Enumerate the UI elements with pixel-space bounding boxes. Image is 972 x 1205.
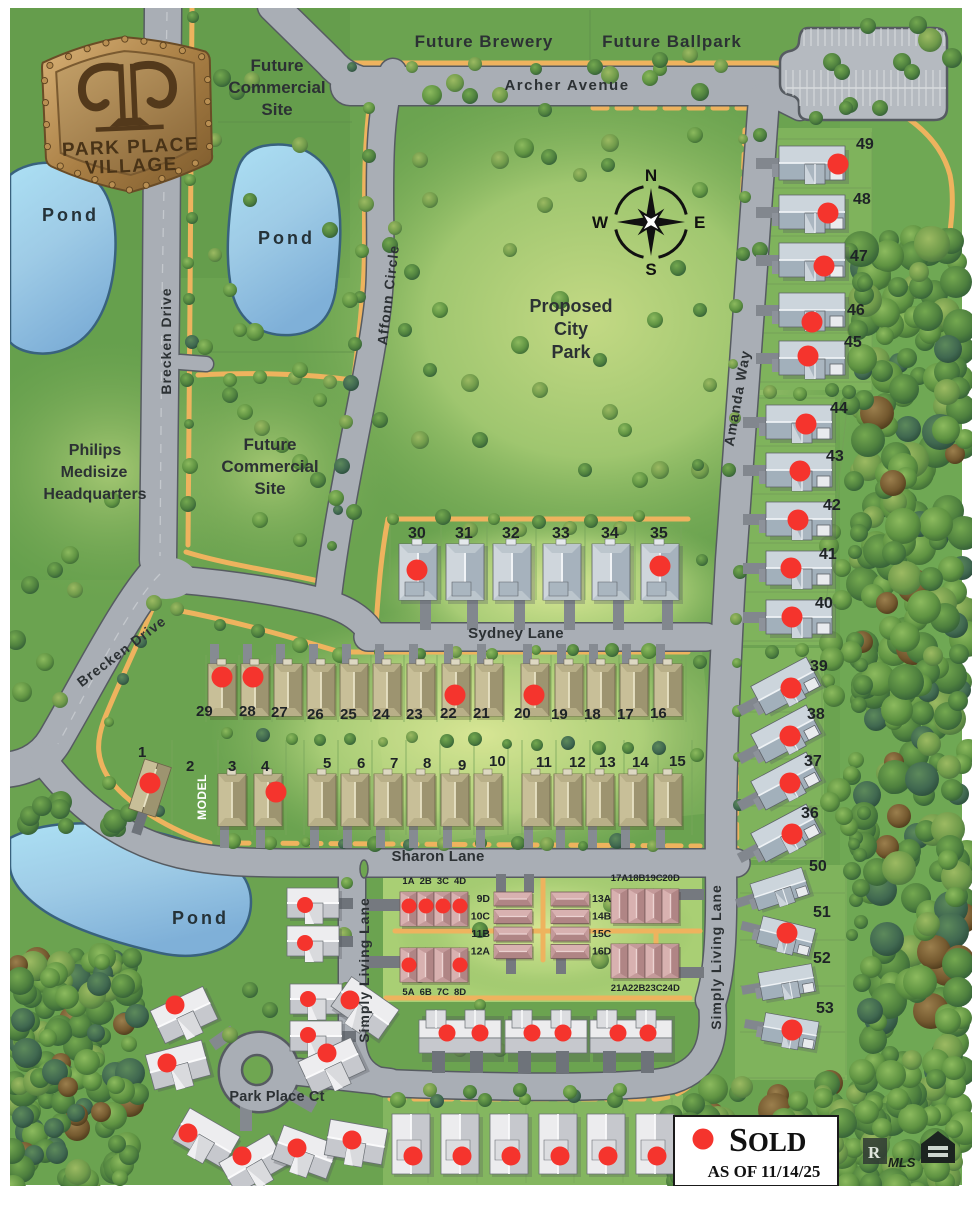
- svg-text:52: 52: [813, 950, 831, 967]
- svg-text:City: City: [554, 319, 588, 339]
- svg-text:25: 25: [340, 706, 357, 723]
- svg-text:Sharon Lane: Sharon Lane: [391, 848, 484, 865]
- svg-text:E: E: [694, 213, 705, 232]
- svg-text:21: 21: [473, 705, 490, 722]
- svg-text:15C: 15C: [592, 928, 612, 940]
- svg-text:51: 51: [813, 904, 831, 921]
- svg-text:50: 50: [809, 858, 827, 875]
- svg-text:28: 28: [239, 703, 256, 720]
- svg-text:Pond: Pond: [42, 205, 99, 225]
- svg-text:22: 22: [440, 705, 457, 722]
- svg-text:32: 32: [502, 525, 520, 542]
- svg-text:7: 7: [390, 755, 398, 772]
- svg-text:49: 49: [856, 136, 874, 153]
- svg-text:3: 3: [228, 758, 236, 775]
- svg-text:21A: 21A: [611, 983, 629, 994]
- svg-text:Simply Living Lane: Simply Living Lane: [708, 884, 724, 1030]
- svg-text:MLS: MLS: [888, 1155, 916, 1170]
- svg-text:VILLAGE: VILLAGE: [85, 154, 179, 179]
- svg-text:13: 13: [599, 754, 616, 771]
- svg-text:16: 16: [650, 705, 667, 722]
- svg-text:39: 39: [810, 658, 828, 675]
- svg-text:16D: 16D: [592, 946, 612, 958]
- svg-text:Pond: Pond: [172, 908, 229, 928]
- svg-text:13A: 13A: [592, 893, 612, 905]
- svg-text:Site: Site: [261, 100, 292, 119]
- svg-text:23C: 23C: [645, 983, 663, 994]
- svg-text:17: 17: [617, 706, 634, 723]
- svg-text:Future: Future: [251, 56, 304, 75]
- svg-text:Philips: Philips: [69, 442, 122, 459]
- svg-text:Pond: Pond: [258, 228, 315, 248]
- svg-text:2: 2: [186, 758, 194, 775]
- svg-text:38: 38: [807, 706, 825, 723]
- svg-text:Archer Avenue: Archer Avenue: [504, 77, 629, 94]
- svg-text:Simply Living Lane: Simply Living Lane: [356, 897, 372, 1043]
- svg-text:41: 41: [819, 546, 837, 563]
- svg-text:20D: 20D: [662, 873, 680, 884]
- svg-text:24: 24: [373, 706, 390, 723]
- svg-text:W: W: [592, 213, 609, 232]
- svg-text:10: 10: [489, 753, 506, 770]
- svg-text:29: 29: [196, 703, 213, 720]
- svg-text:1A: 1A: [402, 876, 414, 887]
- svg-text:36: 36: [801, 805, 819, 822]
- svg-text:14B: 14B: [592, 911, 612, 923]
- svg-text:46: 46: [847, 302, 865, 319]
- svg-text:4: 4: [261, 758, 270, 775]
- svg-text:R: R: [868, 1143, 881, 1162]
- svg-text:37: 37: [804, 753, 822, 770]
- svg-text:19C: 19C: [645, 873, 663, 884]
- svg-text:Commercial: Commercial: [221, 457, 318, 476]
- svg-text:S: S: [645, 260, 656, 279]
- svg-text:Park: Park: [551, 342, 591, 362]
- svg-text:6: 6: [357, 755, 365, 772]
- svg-text:14: 14: [632, 754, 649, 771]
- svg-text:27: 27: [271, 704, 288, 721]
- svg-text:4D: 4D: [454, 876, 466, 887]
- svg-text:5A: 5A: [402, 987, 414, 998]
- svg-text:18B: 18B: [628, 873, 646, 884]
- svg-text:Sydney Lane: Sydney Lane: [468, 625, 564, 642]
- svg-text:31: 31: [455, 525, 473, 542]
- svg-text:48: 48: [853, 191, 871, 208]
- svg-text:53: 53: [816, 1000, 834, 1017]
- svg-text:20: 20: [514, 705, 531, 722]
- svg-text:43: 43: [826, 448, 844, 465]
- svg-text:Future Ballpark: Future Ballpark: [602, 32, 742, 51]
- svg-text:34: 34: [601, 525, 619, 542]
- svg-text:17A: 17A: [611, 873, 629, 884]
- svg-text:47: 47: [850, 248, 868, 265]
- svg-text:Headquarters: Headquarters: [43, 486, 146, 503]
- svg-text:44: 44: [830, 400, 848, 417]
- svg-text:Park Place Ct: Park Place Ct: [229, 1089, 324, 1105]
- svg-text:Proposed: Proposed: [529, 296, 612, 316]
- svg-text:12: 12: [569, 754, 586, 771]
- svg-text:Brecken Drive: Brecken Drive: [158, 287, 174, 394]
- svg-text:18: 18: [584, 706, 601, 723]
- svg-text:1: 1: [138, 744, 146, 761]
- svg-text:15: 15: [669, 753, 686, 770]
- svg-text:Site: Site: [254, 479, 285, 498]
- svg-text:24D: 24D: [662, 983, 680, 994]
- svg-text:8D: 8D: [454, 987, 466, 998]
- svg-text:11: 11: [536, 754, 552, 771]
- svg-text:2B: 2B: [420, 876, 432, 887]
- svg-text:42: 42: [823, 497, 841, 514]
- svg-text:9: 9: [458, 757, 466, 774]
- svg-text:N: N: [645, 166, 657, 185]
- svg-text:33: 33: [552, 525, 570, 542]
- svg-text:SOLD: SOLD: [729, 1122, 806, 1159]
- svg-text:7C: 7C: [437, 987, 449, 998]
- svg-text:5: 5: [323, 755, 331, 772]
- svg-text:6B: 6B: [420, 987, 432, 998]
- svg-text:11B: 11B: [471, 928, 490, 940]
- svg-text:23: 23: [406, 706, 423, 723]
- svg-text:Commercial: Commercial: [228, 78, 325, 97]
- svg-text:Future: Future: [244, 435, 297, 454]
- svg-text:45: 45: [844, 334, 862, 351]
- svg-text:8: 8: [423, 755, 431, 772]
- svg-text:35: 35: [650, 525, 668, 542]
- svg-text:30: 30: [408, 525, 426, 542]
- svg-text:26: 26: [307, 706, 324, 723]
- svg-text:40: 40: [815, 595, 833, 612]
- svg-text:10C: 10C: [471, 911, 491, 923]
- svg-text:MODEL: MODEL: [195, 774, 209, 820]
- svg-text:9D: 9D: [477, 893, 491, 905]
- svg-text:Medisize: Medisize: [61, 464, 128, 481]
- svg-text:12A: 12A: [471, 946, 491, 958]
- svg-text:AS OF 11/14/25: AS OF 11/14/25: [708, 1162, 821, 1181]
- svg-text:Future Brewery: Future Brewery: [415, 32, 554, 51]
- svg-text:3C: 3C: [437, 876, 449, 887]
- svg-text:22B: 22B: [628, 983, 646, 994]
- svg-text:19: 19: [551, 706, 568, 723]
